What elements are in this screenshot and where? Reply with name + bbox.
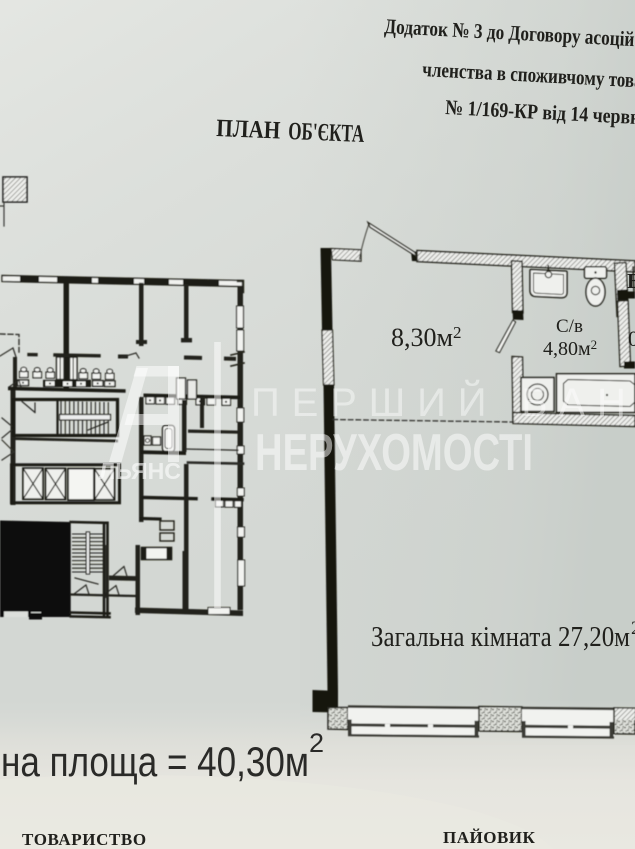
svg-text:ПАЙОВИК: ПАЙОВИК	[443, 828, 536, 847]
svg-text:4,80м2: 4,80м2	[543, 337, 597, 360]
svg-text:ОБ'ЄКТА: ОБ'ЄКТА	[288, 118, 365, 148]
svg-text:ПЛАН: ПЛАН	[216, 115, 281, 145]
svg-text:8,30м2: 8,30м2	[391, 323, 461, 352]
svg-text:ЛЬЯНС: ЛЬЯНС	[99, 458, 181, 484]
svg-text:0,: 0,	[628, 326, 635, 351]
svg-text:ТОВАРИСТВО: ТОВАРИСТВО	[22, 830, 147, 849]
svg-text:2: 2	[631, 618, 635, 639]
svg-text:ПЕРШИЙ БАНК: ПЕРШИЙ БАНК	[251, 379, 635, 425]
svg-text:С/в: С/в	[556, 316, 583, 337]
svg-text:2: 2	[309, 728, 324, 758]
svg-text:на площа = 40,30м: на площа = 40,30м	[1, 738, 309, 785]
svg-text:В: В	[627, 269, 635, 293]
svg-text:НЕРУХОМОСТІ: НЕРУХОМОСТІ	[255, 424, 533, 482]
svg-text:Загальна кімната 27,20м: Загальна кімната 27,20м	[371, 621, 630, 653]
